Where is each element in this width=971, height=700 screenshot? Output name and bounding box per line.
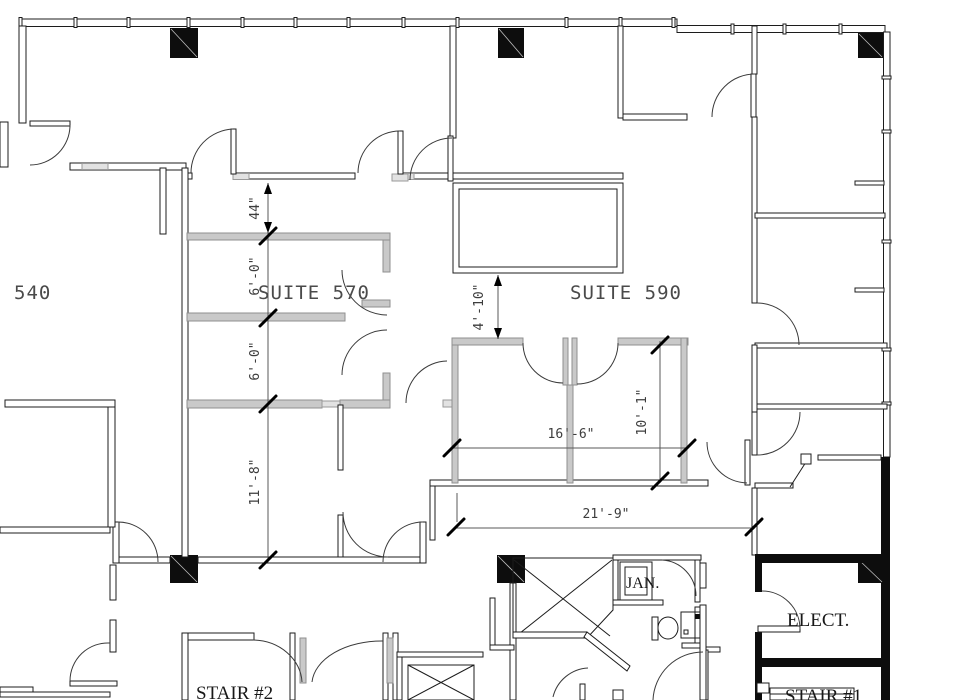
dimension-office-b-width: 6'-0" xyxy=(248,341,263,380)
dimension-room-width: 11'-8" xyxy=(248,459,263,506)
suite-590-label: SUITE 590 xyxy=(570,282,682,304)
interior-walls xyxy=(0,26,887,700)
dimension-office-depth: 10'-1" xyxy=(635,389,650,436)
janitor-room-label: JAN. xyxy=(626,575,659,592)
floor-plan: 44" 6'-0" 6'-0" 11'-8" 4'-10" 10'-1" 16'… xyxy=(0,0,971,700)
suite-570-label: SUITE 570 xyxy=(258,282,370,304)
stair-1-label: STAIR #1 xyxy=(785,686,862,700)
dimension-corridor-width: 44" xyxy=(248,196,263,219)
dimension-setback: 4'-10" xyxy=(472,284,487,331)
floor-plan-drawing: 44" 6'-0" 6'-0" 11'-8" 4'-10" 10'-1" 16'… xyxy=(0,0,971,700)
stair-2-label: STAIR #2 xyxy=(196,683,273,700)
structural-columns xyxy=(170,28,883,583)
suite-590-partitions xyxy=(452,338,688,483)
dimension-overall-width: 21'-9" xyxy=(583,507,630,522)
suite-540-label: 540 xyxy=(14,282,51,304)
electrical-room-label: ELECT. xyxy=(787,610,849,631)
toilet-tank xyxy=(652,617,658,640)
dimension-suite-interior-width: 16'-6" xyxy=(548,427,595,442)
labels: 540 SUITE 570 SUITE 590 JAN. ELECT. STAI… xyxy=(14,282,862,700)
toilet-bowl xyxy=(658,617,678,639)
